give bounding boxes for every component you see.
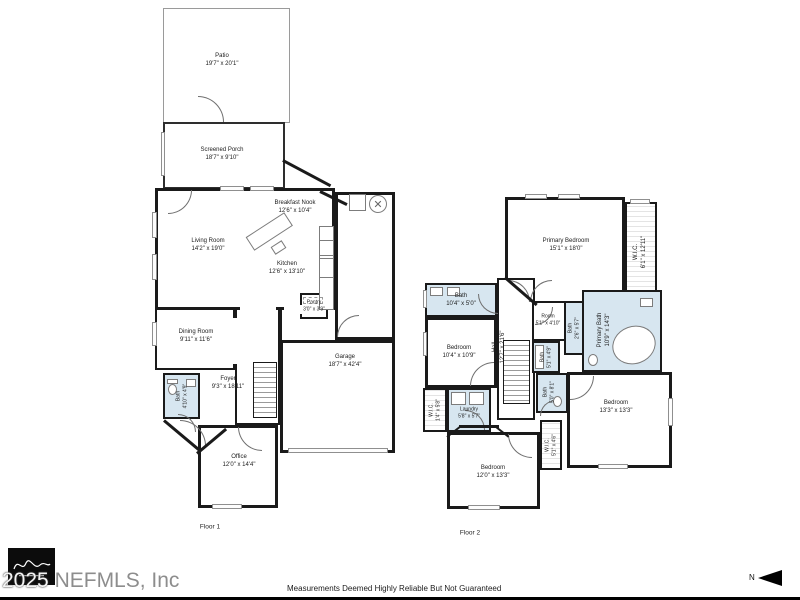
room-name: Bedroom — [443, 345, 476, 353]
room-name: Bedroom — [477, 465, 510, 473]
room-label-patio: Patio 19'7" x 20'1" — [206, 53, 239, 69]
room-label-laundry: Laundry 5'8" x 5'7" — [458, 407, 480, 420]
room-dims: 15'1" x 18'0" — [543, 246, 590, 254]
room-name: Laundry — [458, 407, 480, 414]
room-label-hall: Hall 12'7" x 21'6" — [492, 331, 508, 364]
room-label-primary-bath: Primary Bath 10'9" x 14'3" — [597, 313, 613, 348]
floor1-label: Floor 1 — [200, 524, 220, 531]
room-label-bath-mid: Bath 5'1" x 4'9" — [540, 346, 553, 368]
garage-door-marker — [288, 448, 388, 453]
room-label-breakfast-nook: Breakfast Nook 12'6" x 10'4" — [274, 200, 315, 216]
room-dims: 9'3" x 18'11" — [212, 384, 244, 392]
window-marker — [152, 322, 157, 346]
wall-segment — [459, 425, 499, 428]
dryer — [469, 392, 484, 405]
room-label-bedroom-right: Bedroom 13'3" x 13'3" — [600, 400, 633, 416]
room-dims: 3'0" x 3'9" — [303, 306, 325, 313]
room-name: Patio — [206, 53, 239, 61]
window-marker — [423, 332, 427, 356]
room-dims: 5'1" x 4'6" — [551, 434, 558, 456]
room-name: Breakfast Nook — [274, 200, 315, 208]
sink — [430, 287, 443, 296]
room-name: Bath — [446, 293, 476, 301]
room-label-wic-left: W.I.C. 1'4" x 5'8" — [429, 399, 442, 421]
room-name: Kitchen — [269, 261, 305, 269]
north-label: N — [749, 573, 755, 582]
floorplan-canvas: ✕ Patio 19'7" x 20'1" Screened Porch 18'… — [0, 0, 800, 600]
room-label-room: Room 5'1" x 4'10" — [536, 314, 561, 327]
north-arrow: N — [758, 570, 782, 586]
water-heater-glyph: ✕ — [373, 198, 382, 211]
room-dims: 2'6" x 5'7" — [574, 317, 581, 339]
room-dims: 12'7" x 21'6" — [500, 331, 508, 364]
room-dims: 5'1" x 4'9" — [546, 346, 553, 368]
window-marker — [525, 194, 547, 199]
window-marker — [558, 194, 580, 199]
room-dims: 9'11" x 11'6" — [179, 337, 214, 345]
north-arrow-icon — [758, 570, 782, 586]
room-dims: 6'1" x 12'11" — [641, 236, 649, 268]
room-label-bath-wc: Bath 2'6" x 5'7" — [568, 317, 581, 339]
room-dims: 10'4" x 5'0" — [446, 301, 476, 309]
room-label-office: Office 12'0" x 14'4" — [223, 454, 256, 470]
room-name: W.I.C. — [633, 236, 641, 268]
room-name: Bedroom — [600, 400, 633, 408]
room-name: Office — [223, 454, 256, 462]
window-marker — [423, 290, 427, 308]
sink — [640, 298, 653, 307]
window-marker — [630, 199, 650, 204]
copyright-org: NEFMLS, Inc — [55, 569, 180, 592]
wall-opening — [240, 305, 276, 314]
room-label-pantry: Pantry 3'0" x 3'9" — [303, 300, 325, 313]
room-label-bedroom-bottom: Bedroom 12'0" x 13'3" — [477, 465, 510, 481]
room-name: Primary Bath — [597, 313, 605, 348]
window-marker — [598, 464, 628, 469]
room-label-living-room: Living Room 14'2" x 19'0" — [191, 238, 224, 254]
copyright-year: 2025 — [2, 569, 49, 592]
room-label-foyer: Foyer 9'3" x 18'11" — [212, 376, 244, 392]
room-name: Living Room — [191, 238, 224, 246]
room-label-kitchen: Kitchen 12'6" x 13'10" — [269, 261, 305, 277]
room-label-dining-room: Dining Room 9'11" x 11'6" — [179, 329, 214, 345]
disclaimer-text: Measurements Deemed Highly Reliable But … — [287, 584, 501, 593]
window-marker — [152, 212, 157, 238]
window-marker — [212, 504, 242, 509]
oven — [319, 258, 334, 278]
room-dims: 12'0" x 14'4" — [223, 462, 256, 470]
window-marker — [152, 254, 157, 280]
window-marker — [668, 398, 673, 426]
water-heater-icon: ✕ — [369, 195, 387, 213]
utility-box — [349, 194, 366, 211]
room-dims: 5'8" x 5'7" — [458, 413, 480, 420]
room-name: Hall — [492, 331, 500, 364]
window-marker — [468, 505, 500, 510]
room-dims: 10'9" x 14'3" — [605, 313, 613, 348]
room-dims: 1'4" x 5'8" — [435, 399, 442, 421]
washer — [451, 392, 466, 405]
room-label-primary-bedroom: Primary Bedroom 15'1" x 18'0" — [543, 238, 590, 254]
room-dims: 4'10" x 4'9" — [182, 384, 189, 409]
room-name: Primary Bedroom — [543, 238, 590, 246]
refrigerator — [319, 240, 334, 256]
room-dims: 13'3" x 13'3" — [600, 408, 633, 416]
window-marker — [161, 132, 165, 176]
room-garage-upper — [335, 192, 395, 340]
room-dims: 14'2" x 19'0" — [191, 246, 224, 254]
room-dims: 12'6" x 10'4" — [274, 208, 315, 216]
room-dims: 12'6" x 13'10" — [269, 269, 305, 277]
copyright-text: 2025 NEFMLS, Inc — [2, 569, 179, 593]
room-name: Dining Room — [179, 329, 214, 337]
room-label-bath-lower: Bath 5'0" x 8'1" — [543, 381, 556, 403]
room-name: Screened Porch — [200, 147, 243, 155]
room-label-bedroom-left: Bedroom 10'4" x 10'9" — [443, 345, 476, 361]
room-dims: 10'4" x 10'9" — [443, 353, 476, 361]
room-label-screened-porch: Screened Porch 18'7" x 9'10" — [200, 147, 243, 163]
wall-segment — [282, 159, 331, 187]
room-dims: 18'7" x 9'10" — [200, 155, 243, 163]
room-name: Garage — [329, 354, 362, 362]
floor2-label: Floor 2 — [460, 530, 480, 537]
room-dims: 5'0" x 8'1" — [549, 381, 556, 403]
room-label-wic-primary: W.I.C. 6'1" x 12'11" — [633, 236, 649, 268]
room-dims: 18'7" x 42'4" — [329, 362, 362, 370]
wall-opening — [231, 318, 241, 364]
room-label-garage: Garage 18'7" x 42'4" — [329, 354, 362, 370]
stairs-floor1 — [253, 362, 277, 418]
room-label-bath-floor1: Bath 4'10" x 4'9" — [176, 384, 189, 409]
room-name: Foyer — [212, 376, 244, 384]
room-dims: 5'1" x 4'10" — [536, 320, 561, 327]
room-dims: 19'7" x 20'1" — [206, 61, 239, 69]
window-marker — [220, 186, 244, 191]
toilet — [588, 354, 598, 366]
room-label-bath-hall: Bath 10'4" x 5'0" — [446, 293, 476, 309]
window-marker — [250, 186, 274, 191]
room-label-wic-right: W.I.C. 5'1" x 4'6" — [545, 434, 558, 456]
room-dims: 12'0" x 13'3" — [477, 473, 510, 481]
